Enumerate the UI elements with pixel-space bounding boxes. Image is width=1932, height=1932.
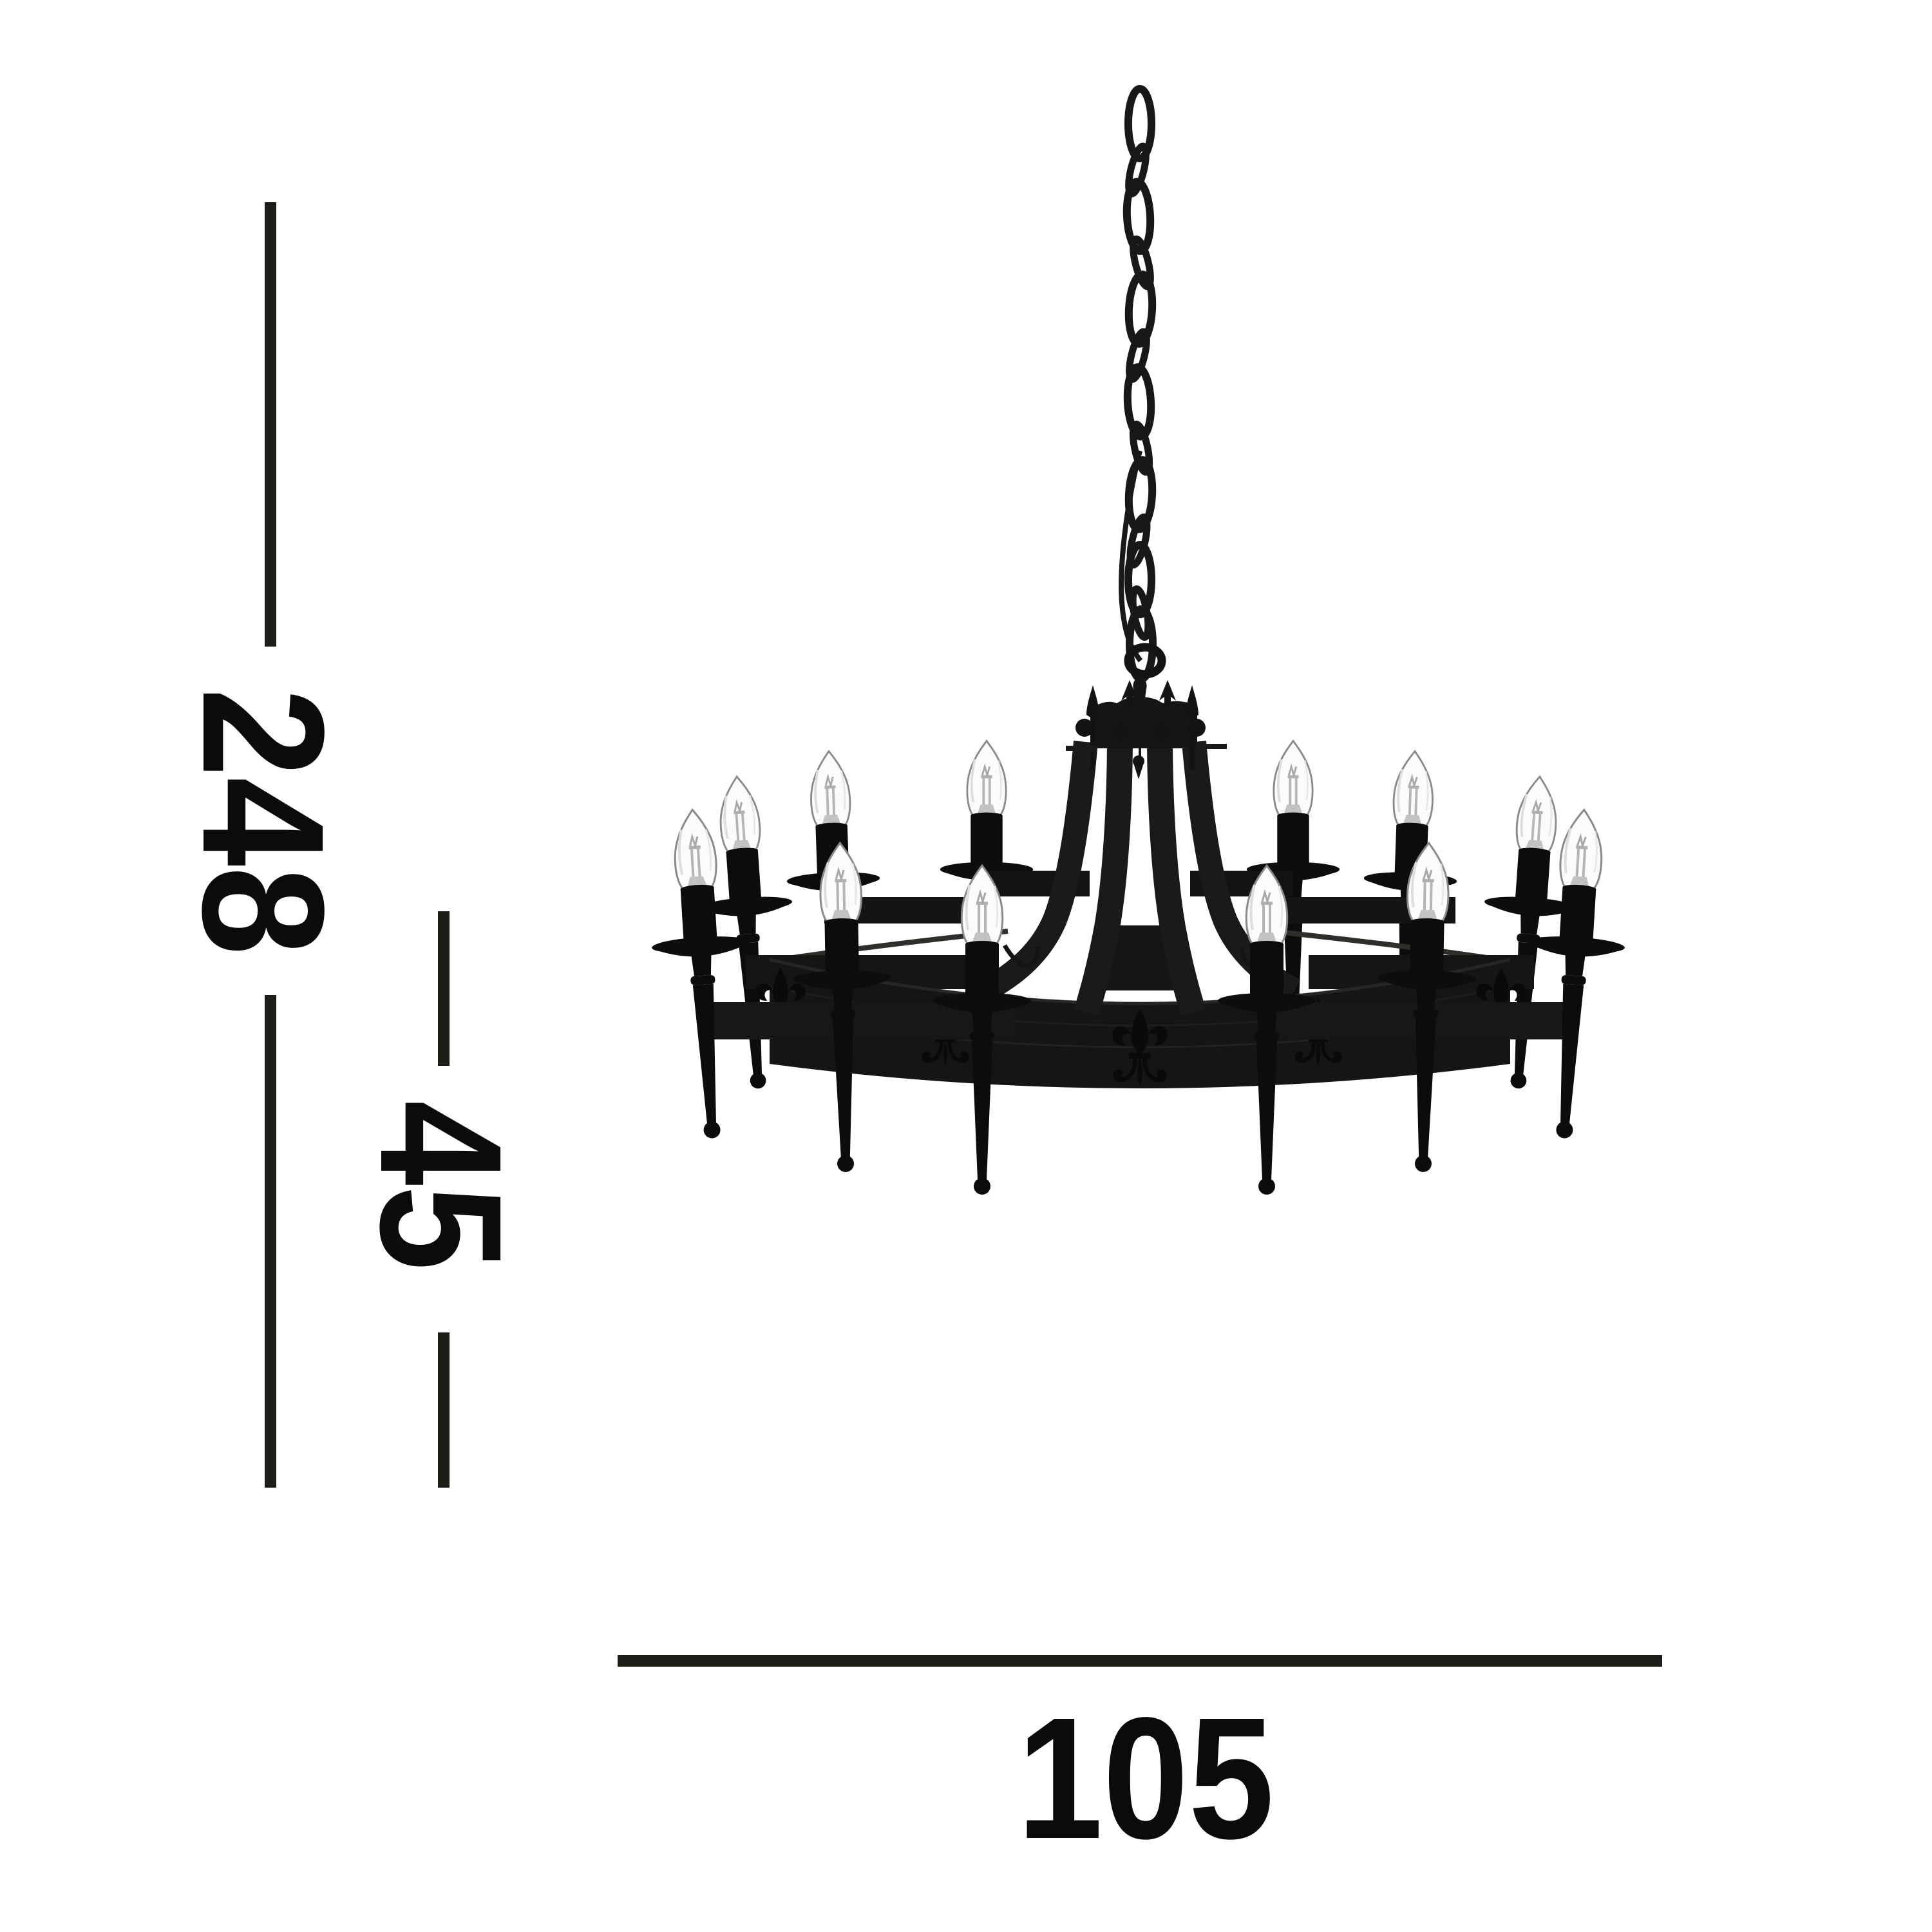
svg-text:248: 248 xyxy=(167,688,361,956)
svg-text:105: 105 xyxy=(1018,1681,1274,1875)
svg-text:45: 45 xyxy=(345,1101,538,1271)
